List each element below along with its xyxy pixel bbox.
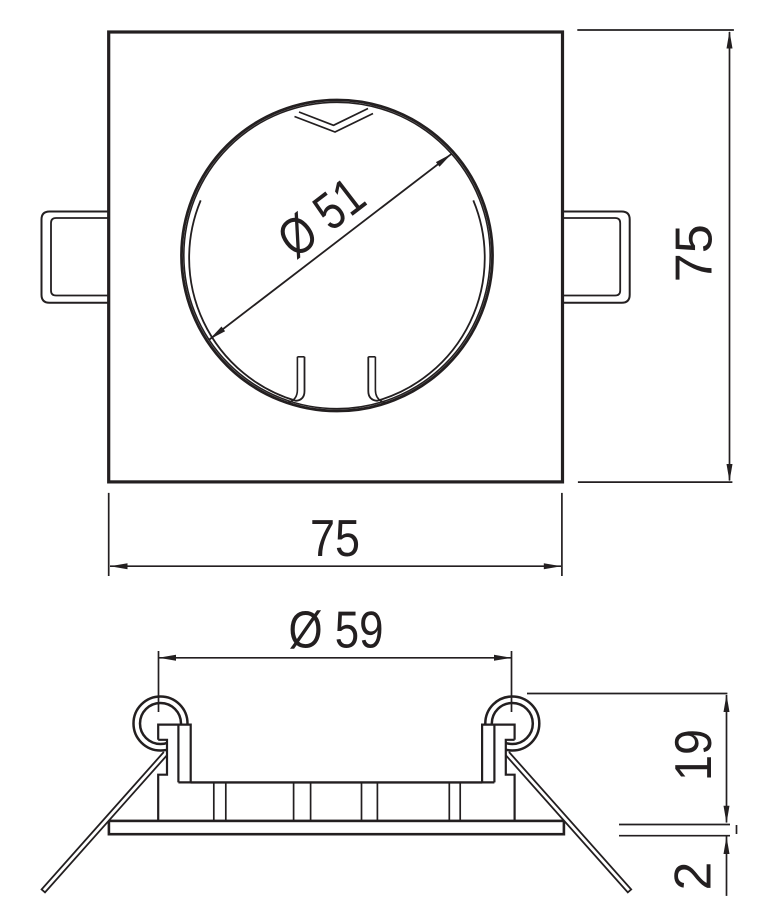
svg-text:75: 75 — [666, 224, 724, 282]
svg-text:Ø 59: Ø 59 — [289, 602, 384, 660]
svg-text:75: 75 — [310, 510, 360, 568]
svg-text:2: 2 — [665, 862, 723, 891]
svg-text:19: 19 — [665, 729, 723, 781]
